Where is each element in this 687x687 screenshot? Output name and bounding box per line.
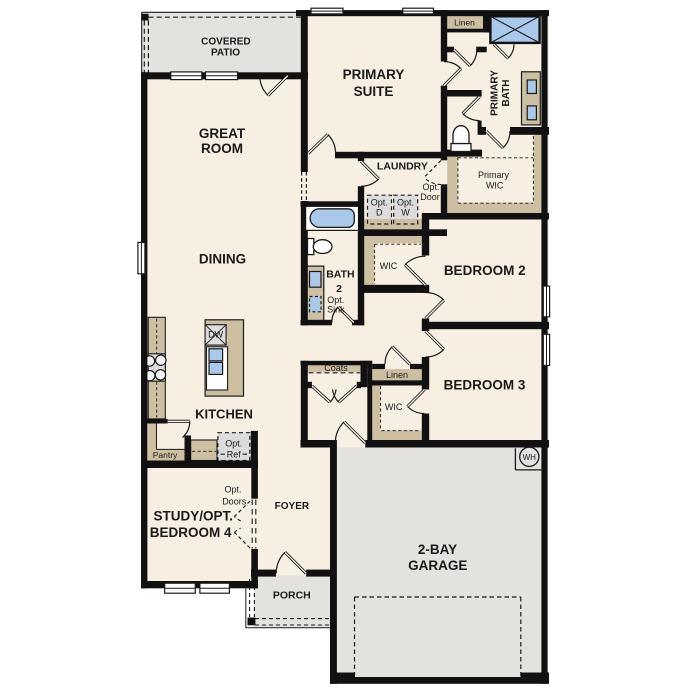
svg-text:PRIMARY: PRIMARY	[343, 67, 405, 82]
svg-text:DW: DW	[208, 329, 223, 339]
svg-text:BEDROOM 3: BEDROOM 3	[444, 378, 526, 393]
svg-text:PORCH: PORCH	[273, 589, 311, 601]
svg-text:Opt.: Opt.	[225, 438, 242, 448]
svg-text:PATIO: PATIO	[211, 48, 240, 59]
svg-text:Coats: Coats	[324, 363, 348, 373]
svg-text:2: 2	[336, 283, 342, 295]
svg-text:WIC: WIC	[486, 181, 504, 191]
svg-text:ROOM: ROOM	[201, 141, 243, 156]
svg-text:2-BAY: 2-BAY	[418, 542, 457, 557]
svg-text:KITCHEN: KITCHEN	[195, 407, 253, 422]
svg-text:Opt.: Opt.	[371, 198, 388, 208]
svg-text:WIC: WIC	[380, 261, 398, 271]
svg-text:WIC: WIC	[385, 402, 403, 412]
svg-text:Opt.: Opt.	[422, 182, 439, 192]
svg-text:BEDROOM 4: BEDROOM 4	[150, 525, 232, 540]
svg-text:BATH: BATH	[326, 268, 354, 280]
svg-text:Primary: Primary	[478, 170, 509, 180]
svg-text:Ref: Ref	[227, 449, 242, 459]
svg-text:D: D	[376, 208, 383, 218]
svg-text:GARAGE: GARAGE	[408, 558, 467, 573]
svg-text:Sink: Sink	[327, 305, 345, 315]
svg-text:WH: WH	[523, 453, 537, 462]
svg-text:Opt.: Opt.	[397, 198, 414, 208]
svg-text:Pantry: Pantry	[153, 450, 178, 460]
svg-text:Doors: Doors	[222, 497, 247, 507]
svg-text:Opt.: Opt.	[327, 295, 344, 305]
svg-text:BEDROOM 2: BEDROOM 2	[444, 263, 526, 278]
svg-text:Linen: Linen	[386, 370, 408, 380]
svg-text:LAUNDRY: LAUNDRY	[377, 160, 428, 172]
svg-text:Opt.: Opt.	[224, 485, 241, 495]
svg-text:SUITE: SUITE	[354, 84, 394, 99]
svg-text:Linen: Linen	[454, 17, 475, 27]
svg-text:W: W	[401, 208, 410, 218]
svg-text:Door: Door	[420, 192, 440, 202]
svg-text:FOYER: FOYER	[275, 501, 310, 512]
svg-text:COVERED: COVERED	[201, 36, 250, 47]
svg-text:GREAT: GREAT	[199, 126, 246, 141]
svg-text:DINING: DINING	[199, 252, 246, 267]
svg-text:STUDY/OPT.: STUDY/OPT.	[154, 508, 234, 523]
